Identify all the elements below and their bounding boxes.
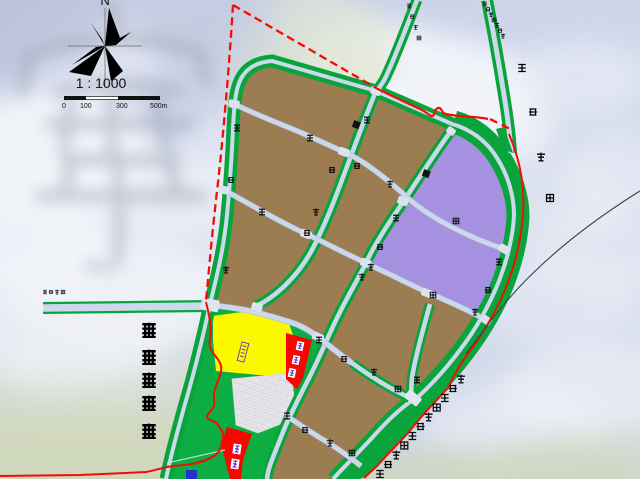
svg-text:0: 0 (62, 103, 66, 110)
svg-text:300: 300 (116, 103, 128, 110)
svg-text:1 : 1000: 1 : 1000 (76, 75, 127, 91)
svg-text:100: 100 (80, 103, 92, 110)
svg-text:500m: 500m (150, 103, 168, 110)
svg-text:N: N (100, 0, 109, 8)
